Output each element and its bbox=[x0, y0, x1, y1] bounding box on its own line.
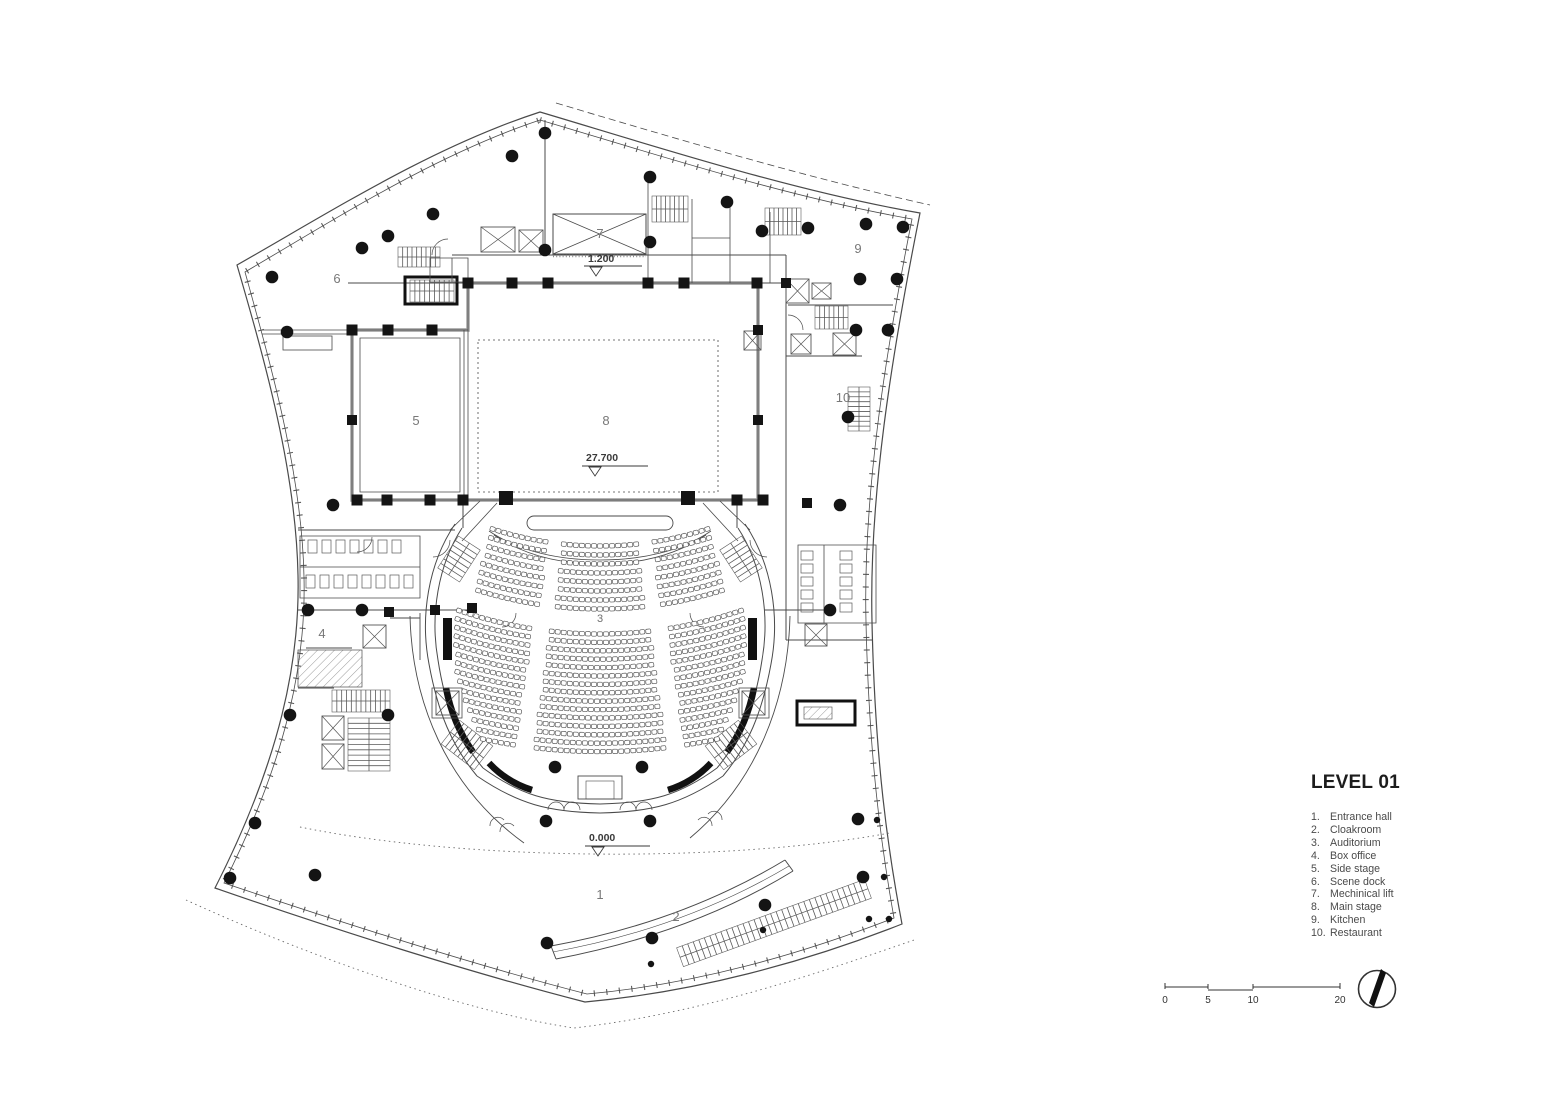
room-label-auditorium: 3 bbox=[597, 613, 603, 625]
legend-item: 5.Side stage bbox=[1311, 863, 1461, 876]
legend-item-name: Auditorium bbox=[1330, 837, 1461, 850]
roof-dashed-line bbox=[556, 103, 930, 205]
legend-item-num: 3. bbox=[1311, 837, 1330, 850]
aud-black-bar-left bbox=[443, 618, 452, 660]
auditorium bbox=[410, 501, 790, 843]
inner-wall bbox=[224, 120, 912, 994]
scale-tick-5: 5 bbox=[1205, 995, 1211, 1006]
legend-item-name: Main stage bbox=[1330, 901, 1461, 914]
legend-item: 9.Kitchen bbox=[1311, 914, 1461, 927]
stage-wall-edges bbox=[352, 283, 758, 500]
north-arrow bbox=[1359, 969, 1396, 1008]
room-label-restaurant: 10 bbox=[836, 390, 850, 405]
legend-item-name: Box office bbox=[1330, 850, 1461, 863]
canopy-dotted-line bbox=[186, 900, 917, 1028]
legend-item-name: Scene dock bbox=[1330, 876, 1461, 889]
legend-item-name: Entrance hall bbox=[1330, 811, 1461, 824]
room-label-side-stage: 5 bbox=[412, 413, 419, 428]
stage-apron bbox=[527, 516, 673, 530]
legend-item: 1.Entrance hall bbox=[1311, 811, 1461, 824]
east-toilet-walls bbox=[798, 545, 876, 623]
box-office-hatch bbox=[298, 650, 362, 687]
aud-black-bar-right bbox=[748, 618, 757, 660]
legend-title: LEVEL 01 bbox=[1311, 772, 1461, 794]
room-label-mech-lift: 7 bbox=[596, 226, 603, 241]
legend-item-name: Side stage bbox=[1330, 863, 1461, 876]
structural-columns bbox=[224, 127, 910, 968]
floor-plan-sheet: 1.200 27.700 0.000 1 2 3 4 5 6 7 8 9 10 … bbox=[0, 0, 1541, 1100]
scene-dock-bench bbox=[283, 336, 332, 350]
back-door-scallops bbox=[548, 802, 652, 810]
legend-item: 8.Main stage bbox=[1311, 901, 1461, 914]
legend-item-name: Mechinical lift bbox=[1330, 888, 1461, 901]
lobby-door-fans bbox=[490, 811, 722, 832]
legend-item: 4.Box office bbox=[1311, 850, 1461, 863]
scene-dock-wall bbox=[262, 330, 352, 334]
room-label-cloakroom: 2 bbox=[672, 909, 679, 924]
elevation-value: 27.700 bbox=[586, 452, 618, 464]
side-stage-inner bbox=[360, 338, 460, 492]
control-booth bbox=[578, 776, 622, 799]
elevation-flag-entrance: 0.000 bbox=[585, 832, 650, 856]
restaurant-walls bbox=[764, 610, 872, 640]
control-booth-inner bbox=[586, 781, 614, 799]
cloakroom-inner bbox=[551, 860, 785, 946]
stage-gray-walls bbox=[352, 283, 758, 500]
facade-mullion-ticks bbox=[224, 120, 912, 994]
legend-item-num: 4. bbox=[1311, 850, 1330, 863]
stage-divider bbox=[464, 330, 468, 500]
legend-item-num: 6. bbox=[1311, 876, 1330, 889]
legend-item-num: 8. bbox=[1311, 901, 1330, 914]
building-outline bbox=[186, 103, 930, 1028]
north-arrow-needle bbox=[1369, 969, 1386, 1007]
legend-item-num: 1. bbox=[1311, 811, 1330, 824]
door-arc-2 bbox=[788, 315, 803, 330]
room-label-box-office: 4 bbox=[318, 626, 325, 641]
legend-item-num: 10. bbox=[1311, 927, 1330, 940]
legend-item: 10.Restaurant bbox=[1311, 927, 1461, 940]
legend-item: 2.Cloakroom bbox=[1311, 824, 1461, 837]
room-label-kitchen: 9 bbox=[854, 241, 861, 256]
scale-tick-0: 0 bbox=[1162, 995, 1168, 1006]
room-label-main-stage: 8 bbox=[602, 413, 609, 428]
legend-item-num: 5. bbox=[1311, 863, 1330, 876]
east-service-box-inner bbox=[804, 707, 832, 719]
elevation-flag-main-stage: 27.700 bbox=[582, 452, 648, 476]
legend-item: 3.Auditorium bbox=[1311, 837, 1461, 850]
room-label-scene-dock: 6 bbox=[333, 271, 340, 286]
north-partitions bbox=[648, 180, 770, 283]
elevation-value: 1.200 bbox=[588, 253, 614, 265]
legend-panel: LEVEL 01 1.Entrance hall 2.Cloakroom 3.A… bbox=[1311, 772, 1461, 940]
stage-block bbox=[352, 283, 758, 528]
west-toilet-walls bbox=[300, 536, 420, 598]
legend-item-num: 9. bbox=[1311, 914, 1330, 927]
legend-item-name: Cloakroom bbox=[1330, 824, 1461, 837]
toilet-stalls bbox=[306, 540, 852, 612]
scale-bar: 0 5 10 20 bbox=[1162, 983, 1346, 1006]
legend-item: 7.Mechinical lift bbox=[1311, 888, 1461, 901]
scale-tick-10: 10 bbox=[1247, 995, 1259, 1006]
elevators bbox=[322, 227, 856, 769]
scale-tick-20: 20 bbox=[1334, 995, 1346, 1006]
main-stage-dotted-area bbox=[478, 340, 718, 492]
cloakroom-mid bbox=[553, 866, 789, 952]
legend-items: 1.Entrance hall 2.Cloakroom 3.Auditorium… bbox=[1311, 811, 1461, 940]
outer-wall bbox=[215, 112, 920, 1002]
legend-item-num: 2. bbox=[1311, 824, 1330, 837]
north-wing bbox=[262, 120, 786, 640]
legend-item-num: 7. bbox=[1311, 888, 1330, 901]
legend-item: 6.Scene dock bbox=[1311, 876, 1461, 889]
legend-item-name: Kitchen bbox=[1330, 914, 1461, 927]
legend-item-name: Restaurant bbox=[1330, 927, 1461, 940]
elevation-value: 0.000 bbox=[589, 832, 615, 844]
scale-bar-line bbox=[1165, 983, 1340, 990]
room-label-entrance-hall: 1 bbox=[596, 887, 603, 902]
floor-plan-drawing: 1.200 27.700 0.000 1 2 3 4 5 6 7 8 9 10 … bbox=[0, 0, 1541, 1100]
